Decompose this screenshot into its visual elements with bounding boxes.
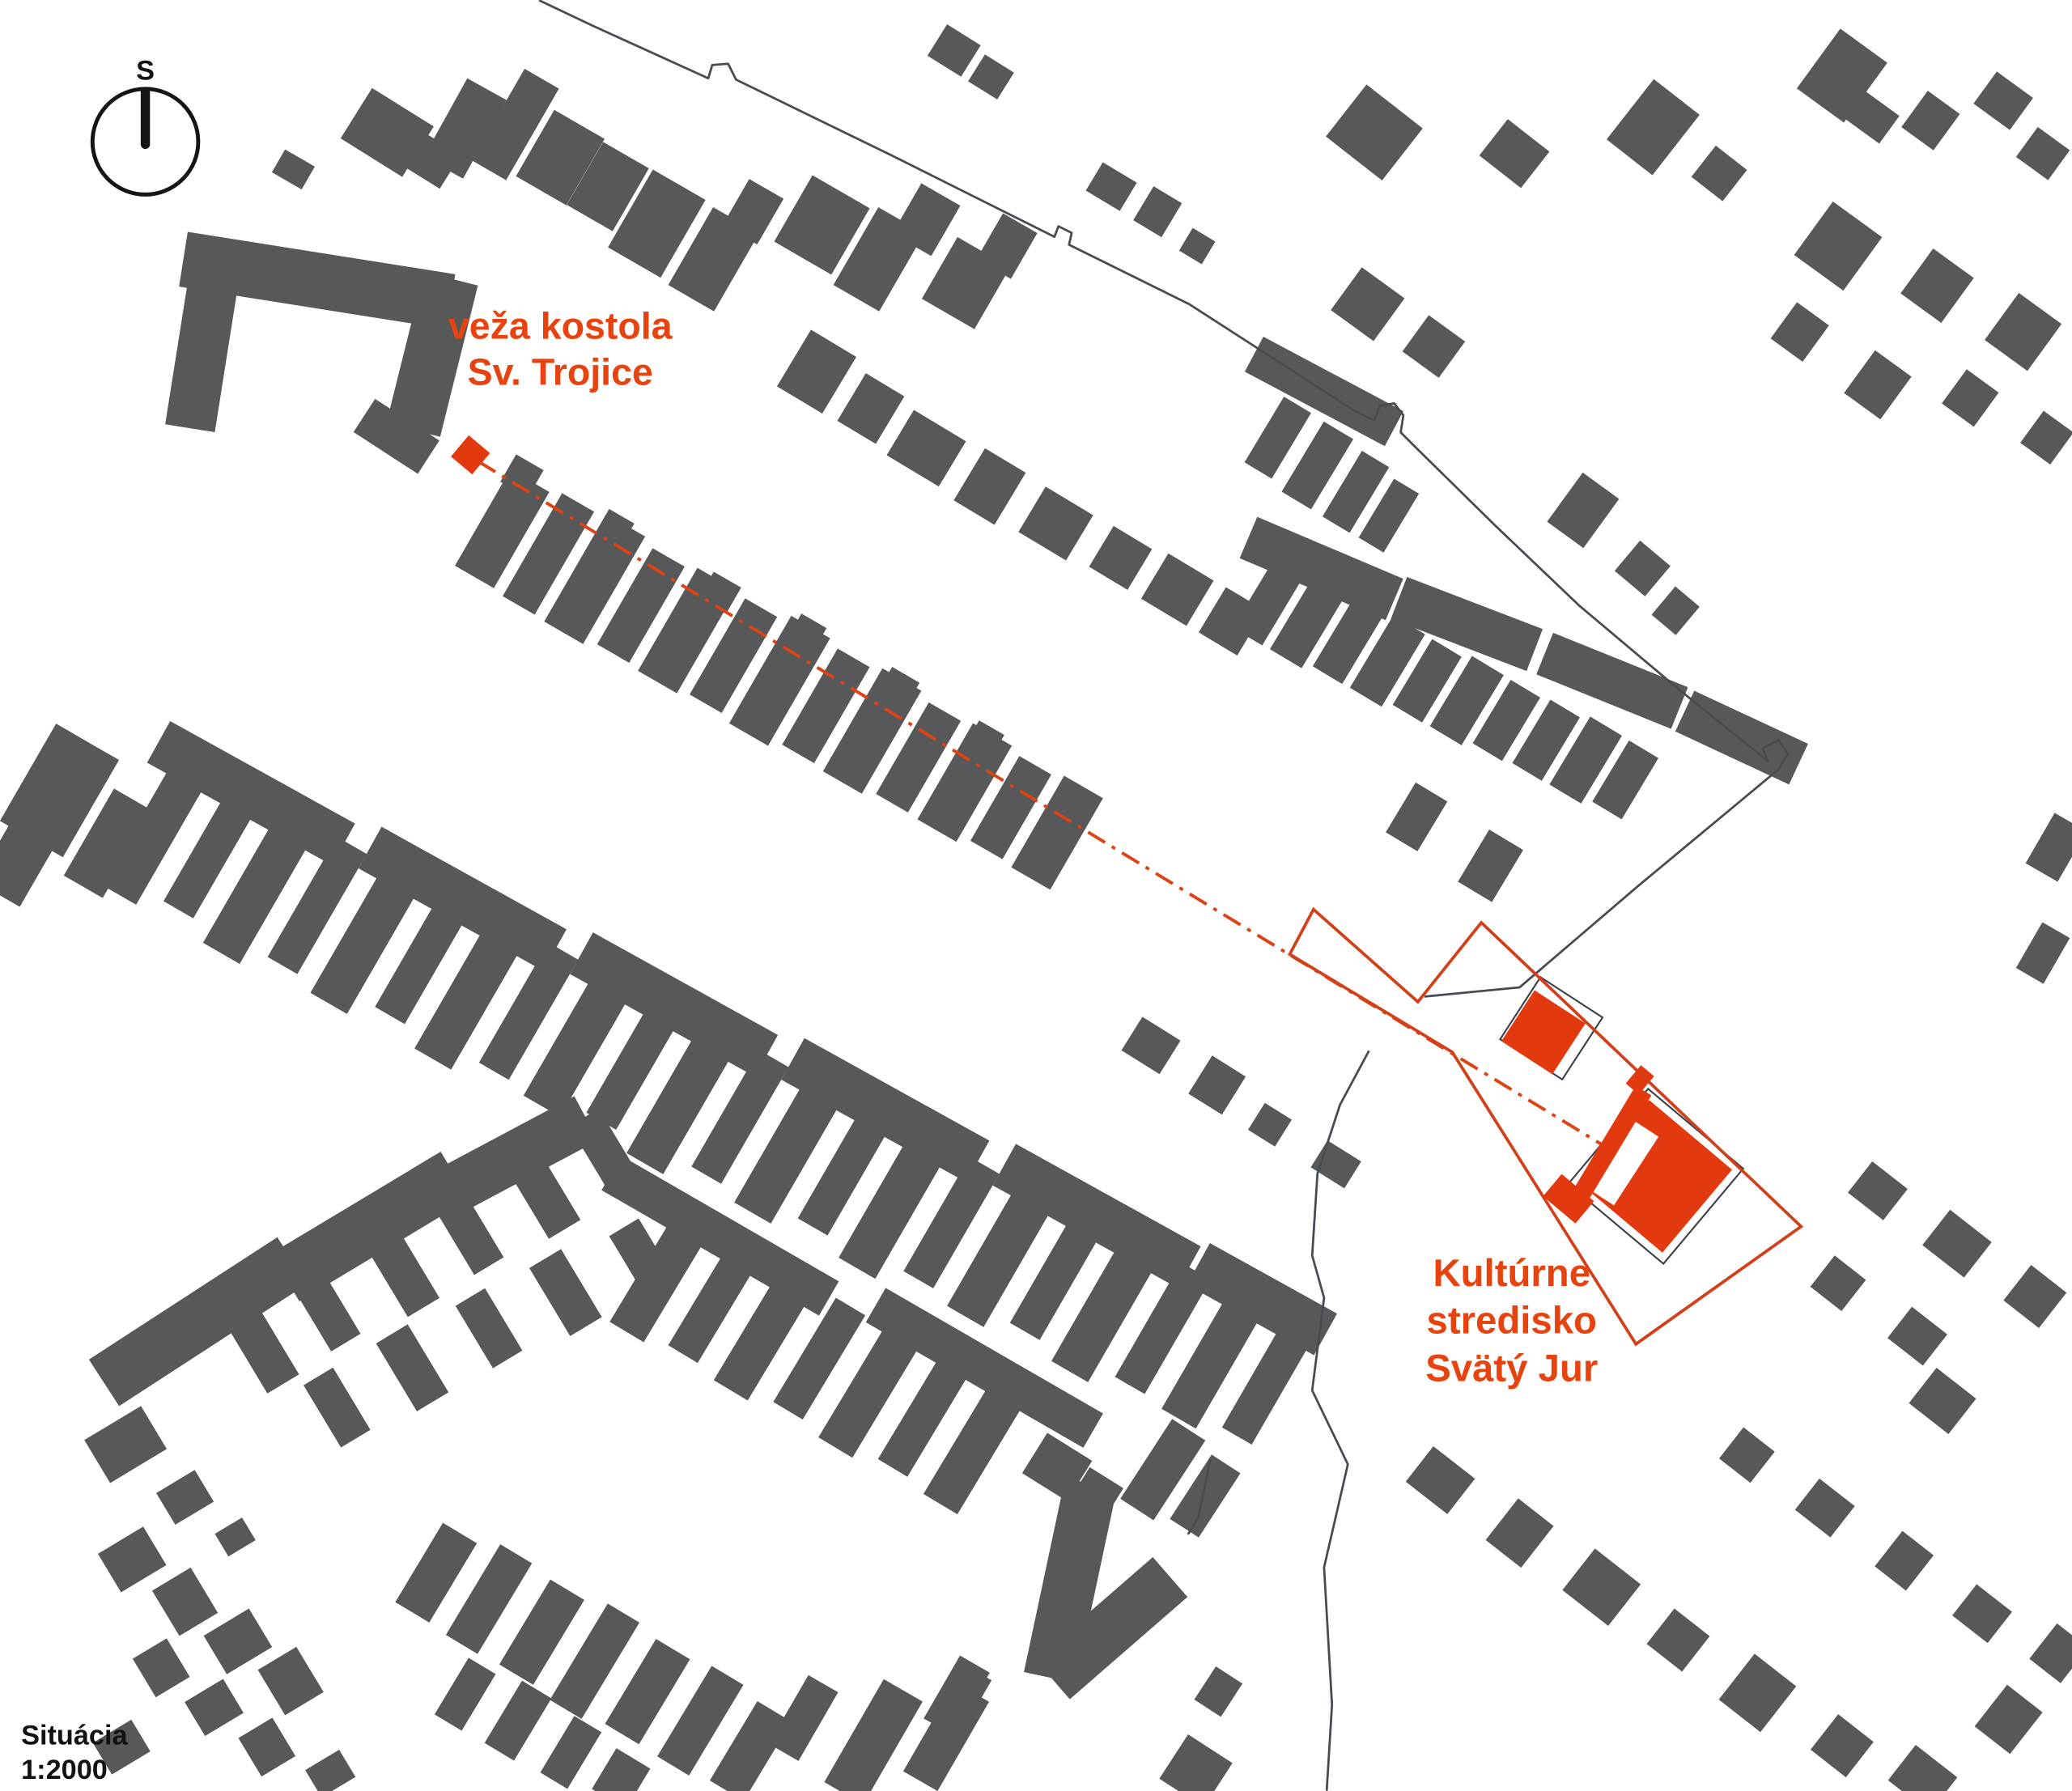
building-footprint: [1900, 248, 1973, 323]
building-footprint: [824, 1679, 923, 1791]
building-footprint: [1018, 486, 1093, 560]
building-footprint: [540, 1716, 601, 1789]
building-footprint: [777, 329, 856, 414]
building-footprint: [1391, 577, 1543, 671]
building-footprint: [1975, 1685, 2043, 1755]
svg-text:Kultúrne: Kultúrne: [1433, 1252, 1590, 1295]
building-footprint: [1122, 1016, 1181, 1074]
svg-text:stredisko: stredisko: [1427, 1300, 1597, 1343]
building-footprint: [435, 1657, 496, 1730]
building-footprint: [1248, 1103, 1292, 1147]
north-arrow-icon: S: [92, 55, 198, 194]
building-footprint: [456, 1288, 523, 1369]
cultural-center-label: Kultúrne stredisko Svätý Jur: [1425, 1252, 1598, 1390]
building-footprint: [152, 1568, 218, 1636]
building-footprint: [2016, 127, 2070, 180]
building-footprint: [1952, 1584, 2012, 1643]
building-footprint: [2016, 922, 2070, 983]
building-footprint: [1692, 146, 1747, 202]
building-footprint: [2003, 1265, 2066, 1328]
building-footprint: [304, 1368, 371, 1448]
building-footprint: [1794, 202, 1883, 291]
building-footprint: [1942, 369, 1998, 427]
building-footprint: [1719, 1653, 1797, 1732]
building-footprint: [1562, 1548, 1641, 1626]
building-footprint: [1331, 267, 1404, 341]
building-layer: [0, 24, 2072, 1791]
building-footprint: [1795, 1479, 1855, 1538]
church-tower-label: veža kostola Sv. Trojice: [448, 304, 673, 393]
building-footprint: [2026, 813, 2072, 881]
building-footprint: [1480, 119, 1550, 188]
building-footprint: [837, 373, 904, 444]
building-footprint: [1141, 554, 1214, 626]
building-footprint: [1719, 1428, 1775, 1483]
building-footprint: [1326, 84, 1423, 180]
building-footprint: [1652, 587, 1700, 635]
svg-text:veža kostola: veža kostola: [448, 304, 673, 346]
building-footprint: [185, 1679, 244, 1736]
building-footprint: [1875, 1531, 1934, 1591]
building-footprint: [1848, 1161, 1908, 1220]
building-footprint: [1771, 302, 1829, 362]
building-footprint: [1811, 1255, 1866, 1311]
building-footprint: [1179, 228, 1216, 265]
building-footprint: [287, 1260, 360, 1352]
building-footprint: [1887, 1307, 1947, 1366]
building-footprint: [376, 1324, 449, 1411]
building-footprint: [592, 1748, 650, 1791]
building-footprint: [953, 448, 1025, 525]
building-footprint: [1310, 1140, 1361, 1188]
building-footprint: [1607, 79, 1700, 176]
building-footprint: [1973, 71, 2033, 129]
building-footprint: [1615, 541, 1671, 596]
compass-north-label: S: [136, 55, 155, 86]
building-footprint: [1486, 1498, 1554, 1568]
building-footprint: [2029, 1623, 2072, 1683]
building-footprint: [1647, 1609, 1710, 1672]
building-footprint: [2020, 411, 2072, 465]
building-footprint: [1844, 350, 1911, 419]
building-footprint: [1386, 783, 1447, 851]
building-footprint: [133, 1638, 190, 1697]
building-footprint: [1985, 293, 2061, 371]
building-footprint: [1811, 1714, 1874, 1777]
building-footprint: [1888, 1745, 1958, 1791]
svg-text:Sv. Trojice: Sv. Trojice: [468, 350, 653, 393]
site-plan-page: S veža kostola Sv. Trojice Kultúrne stre…: [0, 0, 2072, 1791]
drawing-title: Situácia: [21, 1720, 128, 1751]
building-footprint: [529, 1249, 602, 1336]
drawing-scale: 1:2000: [21, 1755, 108, 1785]
building-footprint: [1922, 1210, 1992, 1278]
church-tower-marker: [451, 435, 490, 474]
building-footprint: [1406, 1446, 1475, 1514]
building-footprint: [886, 410, 966, 487]
building-footprint: [1195, 1666, 1243, 1717]
building-footprint: [1086, 162, 1137, 210]
building-footprint: [1909, 1368, 1976, 1434]
site-plan-svg: S veža kostola Sv. Trojice Kultúrne stre…: [0, 0, 2072, 1791]
building-footprint: [305, 1750, 355, 1791]
building-footprint: [1675, 690, 1808, 784]
building-footprint: [1547, 473, 1619, 548]
building-footprint: [272, 150, 315, 190]
building-footprint: [1403, 315, 1466, 378]
building-footprint: [1133, 186, 1182, 237]
building-footprint: [239, 1717, 296, 1776]
building-footprint: [1458, 830, 1523, 902]
building-footprint: [98, 1526, 167, 1592]
building-footprint: [1159, 1734, 1232, 1791]
building-footprint: [156, 1470, 214, 1525]
building-footprint: [968, 54, 1014, 100]
svg-text:Svätý Jur: Svätý Jur: [1425, 1347, 1598, 1390]
building-footprint: [165, 287, 236, 432]
building-footprint: [84, 1406, 167, 1483]
building-footprint: [1901, 91, 1959, 151]
building-footprint: [485, 1681, 552, 1761]
building-footprint: [928, 24, 981, 77]
building-footprint: [204, 1609, 273, 1674]
building-footprint: [258, 1647, 324, 1716]
building-footprint: [214, 1517, 255, 1556]
building-footprint: [1089, 526, 1153, 590]
building-footprint: [1188, 1055, 1246, 1114]
